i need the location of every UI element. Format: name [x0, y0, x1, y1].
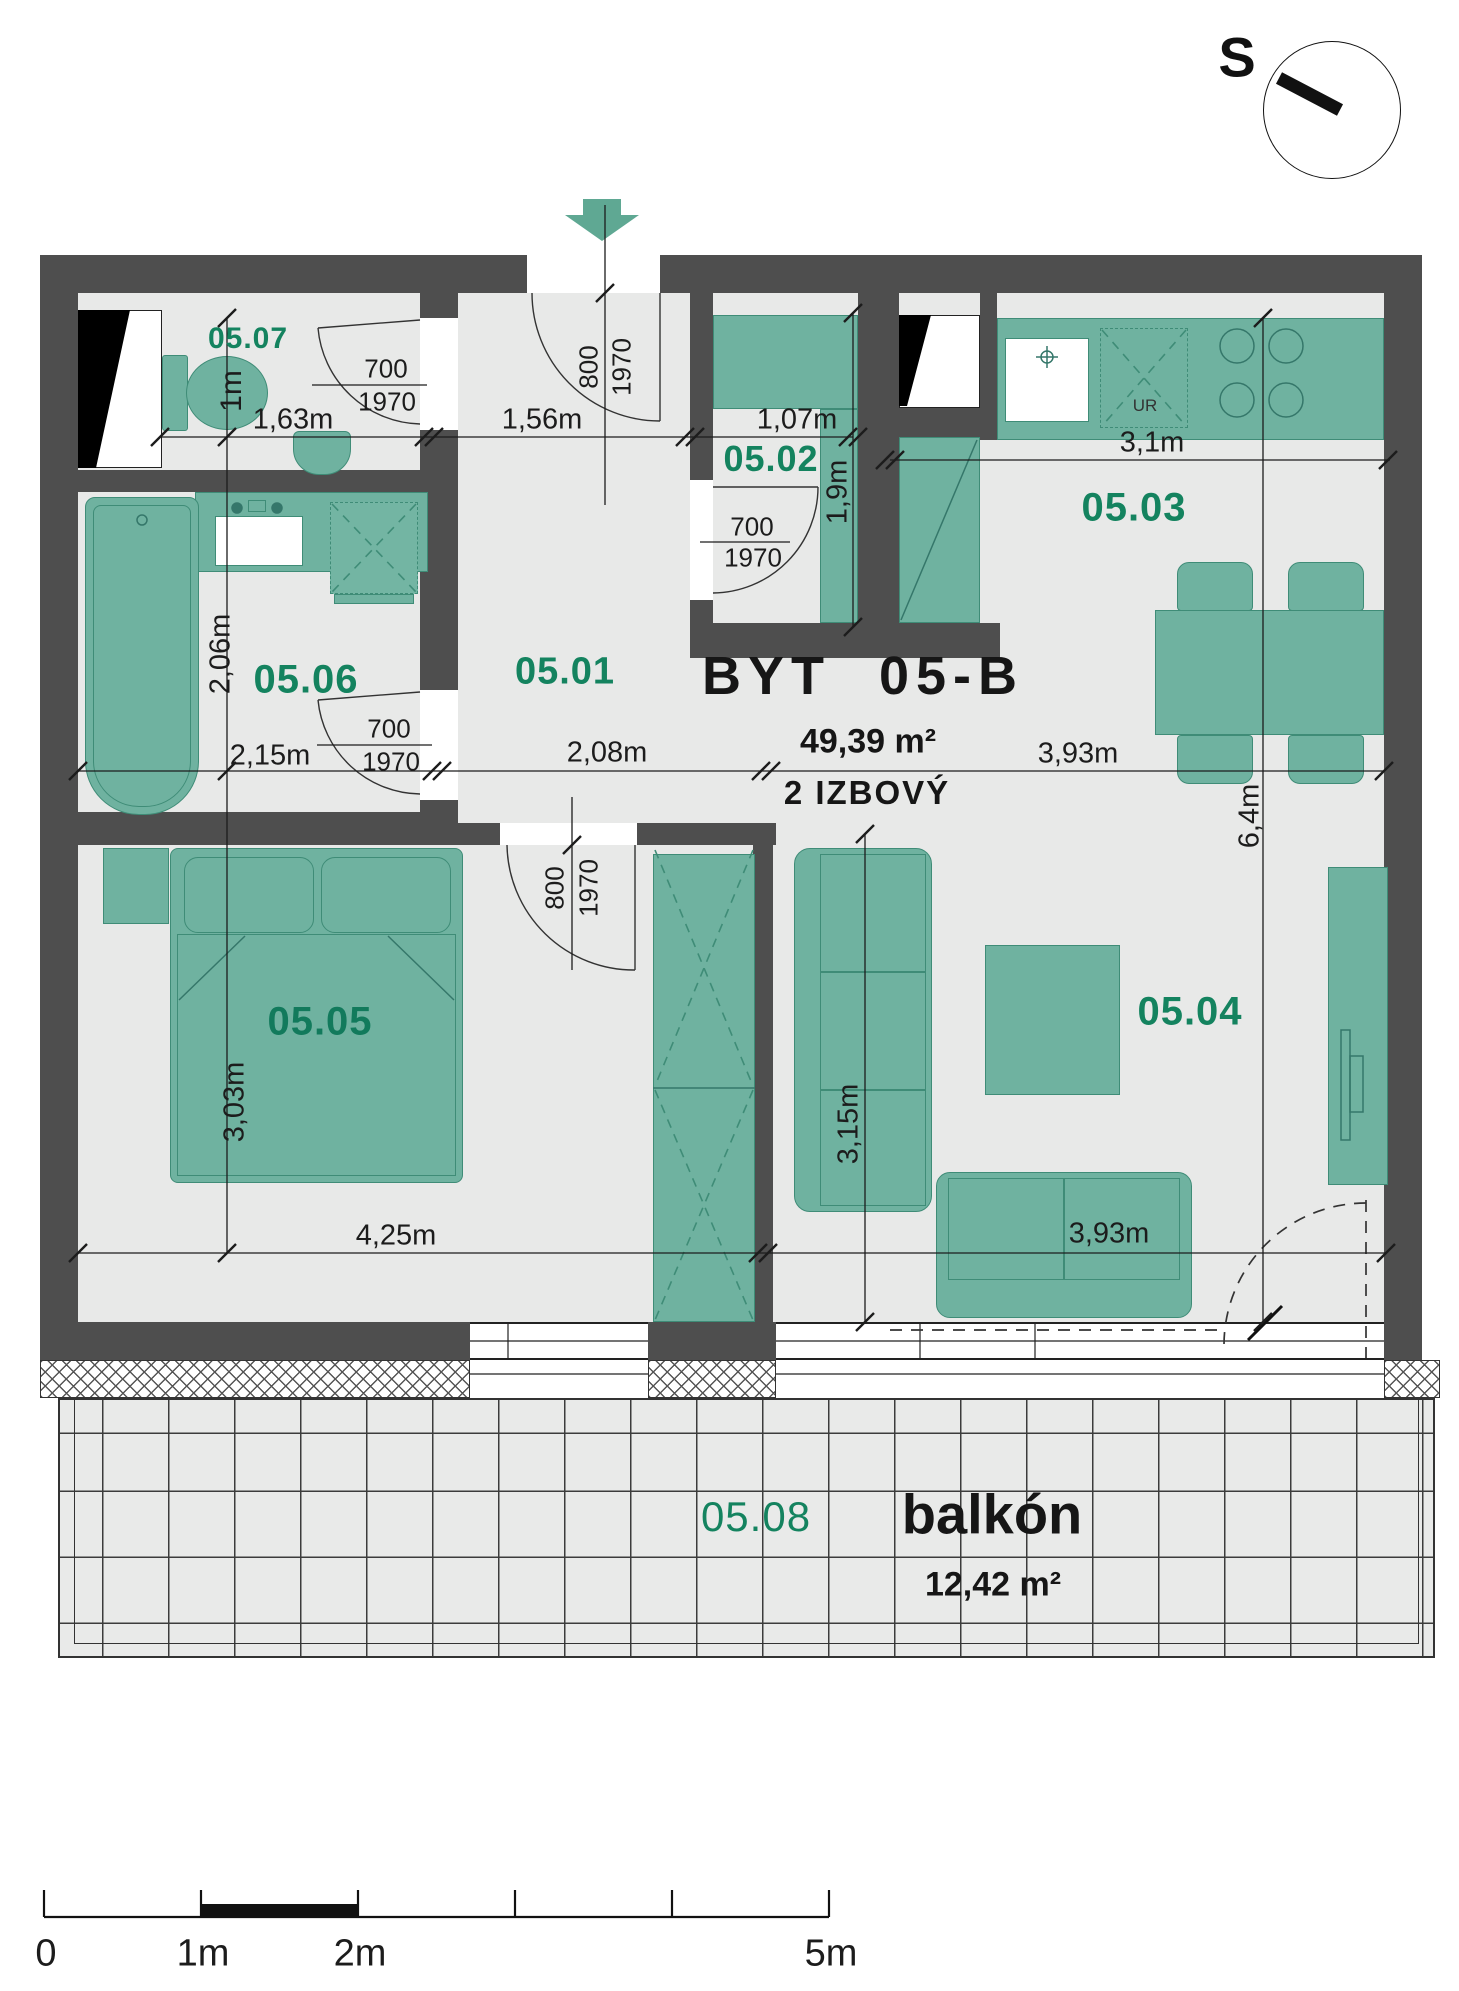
wall-shaft-west — [880, 293, 899, 623]
shaft-box-kitchen — [899, 315, 980, 408]
hatch-strip-middle — [648, 1360, 776, 1398]
room-label-bedroom: 05.05 — [267, 1000, 372, 1045]
wc-basin — [293, 431, 351, 475]
dim-wc-width: 1,63m — [253, 404, 334, 437]
scale-label-5m: 5m — [805, 1933, 858, 1976]
room-label-balcony: 05.08 — [701, 1493, 811, 1541]
dining-table — [1155, 610, 1384, 735]
closet-door-gap — [690, 480, 713, 600]
dim-living-inner-depth: 3,15m — [833, 1084, 866, 1165]
scale-bar-filled-segment — [201, 1904, 358, 1917]
room-label-wc: 05.07 — [208, 322, 288, 356]
closet-door-height: 1970 — [724, 543, 782, 574]
entrance-door-gap — [527, 255, 660, 293]
entrance-door-height: 1970 — [607, 338, 638, 396]
bedroom-window — [470, 1322, 648, 1360]
bedroom-door-width: 800 — [540, 866, 571, 909]
wc-door-gap — [420, 318, 458, 430]
dim-bathroom-width: 2,15m — [230, 740, 311, 773]
dim-bedroom-depth: 3,03m — [219, 1062, 252, 1143]
wall-closet-east — [858, 293, 880, 658]
bath-door-gap — [420, 690, 458, 800]
compass-north-label: S — [1218, 25, 1255, 90]
room-label-hall: 05.01 — [515, 651, 615, 694]
coffee-table — [985, 945, 1120, 1095]
sofa-long-cushion-2 — [820, 972, 926, 1090]
dim-kitchen-width: 3,1m — [1120, 427, 1184, 460]
wall-bedroom-top-a — [455, 823, 500, 845]
room-label-closet: 05.02 — [723, 438, 818, 480]
washing-machine-base — [334, 594, 414, 604]
wall-shaft-bottom — [899, 408, 980, 437]
kitchen-sink — [1005, 338, 1089, 422]
bedroom-door-gap — [500, 823, 637, 845]
dim-closet-width: 1,07m — [757, 404, 838, 437]
living-window — [776, 1322, 1384, 1360]
closet-door-width: 700 — [730, 512, 773, 543]
wall-living-west — [753, 845, 773, 1322]
hatch-strip-left — [40, 1360, 470, 1398]
closet-wardrobe-top — [713, 315, 858, 409]
wall-bottom-bedroom — [40, 1322, 470, 1360]
entrance-arrow-icon — [565, 199, 639, 241]
room-label-living: 05.04 — [1137, 990, 1242, 1035]
bath-sink — [215, 516, 303, 566]
dining-chair-3 — [1177, 735, 1253, 784]
sofa-long-cushion-1 — [820, 854, 926, 972]
bed-pillow-2 — [321, 857, 451, 933]
dining-chair-1 — [1177, 562, 1253, 611]
apartment-area: 49,39 m² — [800, 723, 936, 762]
bath-door-height: 1970 — [362, 747, 420, 778]
wall-top-left — [40, 255, 527, 293]
wall-shaft-east — [980, 293, 997, 440]
scale-label-1m: 1m — [177, 1933, 230, 1976]
wall-bottom-pier — [648, 1322, 776, 1360]
apartment-type: 2 IZBOVÝ — [784, 774, 950, 812]
wc-door-width: 700 — [364, 354, 407, 385]
bath-faucet — [248, 500, 266, 512]
washing-machine — [330, 502, 418, 594]
tv-cabinet — [1328, 867, 1388, 1185]
wall-bath-bottom — [78, 812, 455, 845]
dim-living-width-top: 3,93m — [1038, 738, 1119, 771]
dim-entry-width: 1,56m — [502, 404, 583, 437]
wall-wc-bath-divider — [78, 470, 420, 492]
balcony-area: 12,42 m² — [925, 1566, 1061, 1605]
dim-closet-depth: 1,9m — [822, 460, 855, 524]
wall-right — [1384, 255, 1422, 1360]
scale-label-2m: 2m — [334, 1933, 387, 1976]
balcony-name: balkón — [902, 1482, 1082, 1547]
apartment-title: BYT 05-B — [702, 645, 1024, 707]
dining-chair-4 — [1288, 735, 1364, 784]
compass-circle — [1263, 41, 1401, 179]
bathtub-inner — [93, 505, 191, 807]
nightstand — [103, 848, 169, 924]
dim-hall-width: 2,08m — [567, 737, 648, 770]
wall-bedroom-top-b — [637, 823, 776, 845]
bed-pillow-1 — [184, 857, 314, 933]
floorplan-canvas: S — [0, 0, 1459, 1991]
bath-door-width: 700 — [367, 714, 410, 745]
wall-left — [40, 255, 78, 1322]
dim-wc-depth: 1m — [215, 370, 249, 412]
scale-bar-lines — [44, 1890, 829, 1917]
shaft-box-wc — [78, 310, 162, 468]
dim-bedroom-width: 4,25m — [356, 1220, 437, 1253]
wall-hall-west-a — [420, 293, 458, 318]
fridge-label: UR — [1133, 396, 1158, 416]
dim-living-depth: 6,4m — [1234, 784, 1267, 848]
toilet-tank — [162, 355, 188, 431]
wall-closet-west-b — [690, 600, 713, 623]
entrance-door-width: 800 — [574, 345, 605, 388]
scale-label-0: 0 — [35, 1933, 56, 1976]
dining-chair-2 — [1288, 562, 1364, 611]
dim-bathroom-depth: 2,06m — [205, 614, 238, 695]
kitchen-niche-cabinet — [899, 437, 980, 623]
bedroom-wardrobe — [653, 854, 755, 1322]
wall-top-right — [660, 255, 1422, 293]
dim-living-width-bottom: 3,93m — [1069, 1218, 1150, 1251]
room-label-kitchen: 05.03 — [1081, 486, 1186, 531]
sofa-small-cushion-1 — [948, 1178, 1064, 1280]
wc-door-height: 1970 — [358, 387, 416, 418]
hatch-strip-right — [1384, 1360, 1440, 1398]
room-label-bathroom: 05.06 — [253, 658, 358, 703]
wall-closet-west-a — [690, 293, 713, 480]
bedroom-door-height: 1970 — [574, 859, 605, 917]
